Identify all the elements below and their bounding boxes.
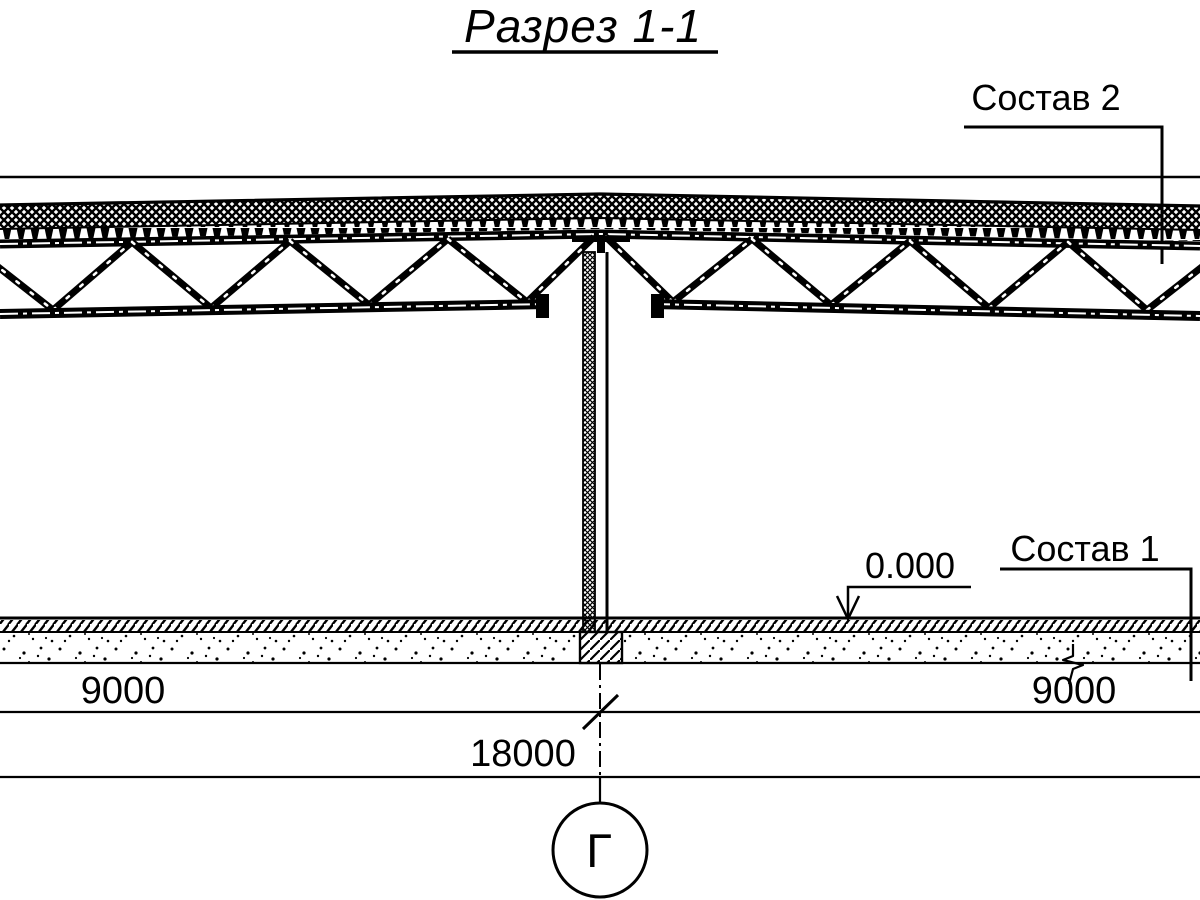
- right-span-dimension: 9000: [1032, 670, 1117, 712]
- elevation-leader-line: [848, 587, 971, 616]
- truss-left: [0, 237, 594, 318]
- column-cap-stub: [597, 242, 605, 253]
- central-column: [572, 236, 630, 632]
- elevation-mark: 0.000: [837, 545, 971, 619]
- drawing-title: Разрез 1-1: [452, 0, 718, 52]
- total-span-dimension: 18000: [470, 733, 576, 775]
- bottom-chord-left-end-plate: [536, 294, 549, 318]
- left-span-dimension: 9000: [81, 670, 166, 712]
- grid-axis: Г: [553, 664, 647, 897]
- axis-letter: Г: [586, 824, 611, 877]
- drawing-sheet: Разрез 1-1 Состав 2: [0, 0, 1200, 900]
- column-footing: [580, 632, 622, 663]
- roof-composition-label: Состав 2: [971, 77, 1120, 118]
- column-hatched-flange: [583, 252, 595, 632]
- column-cap-plate: [572, 236, 630, 242]
- truss-left-diagonals: [0, 237, 594, 310]
- truss-right: [606, 237, 1200, 318]
- floor-topping-hatch-band: [0, 620, 1200, 632]
- elevation-value: 0.000: [865, 545, 955, 586]
- bottom-chord-right-end-plate: [651, 294, 664, 318]
- section-drawing: Разрез 1-1 Состав 2: [0, 0, 1200, 900]
- page-title: Разрез 1-1: [464, 0, 702, 52]
- floor-composition-label: Состав 1: [1010, 528, 1159, 569]
